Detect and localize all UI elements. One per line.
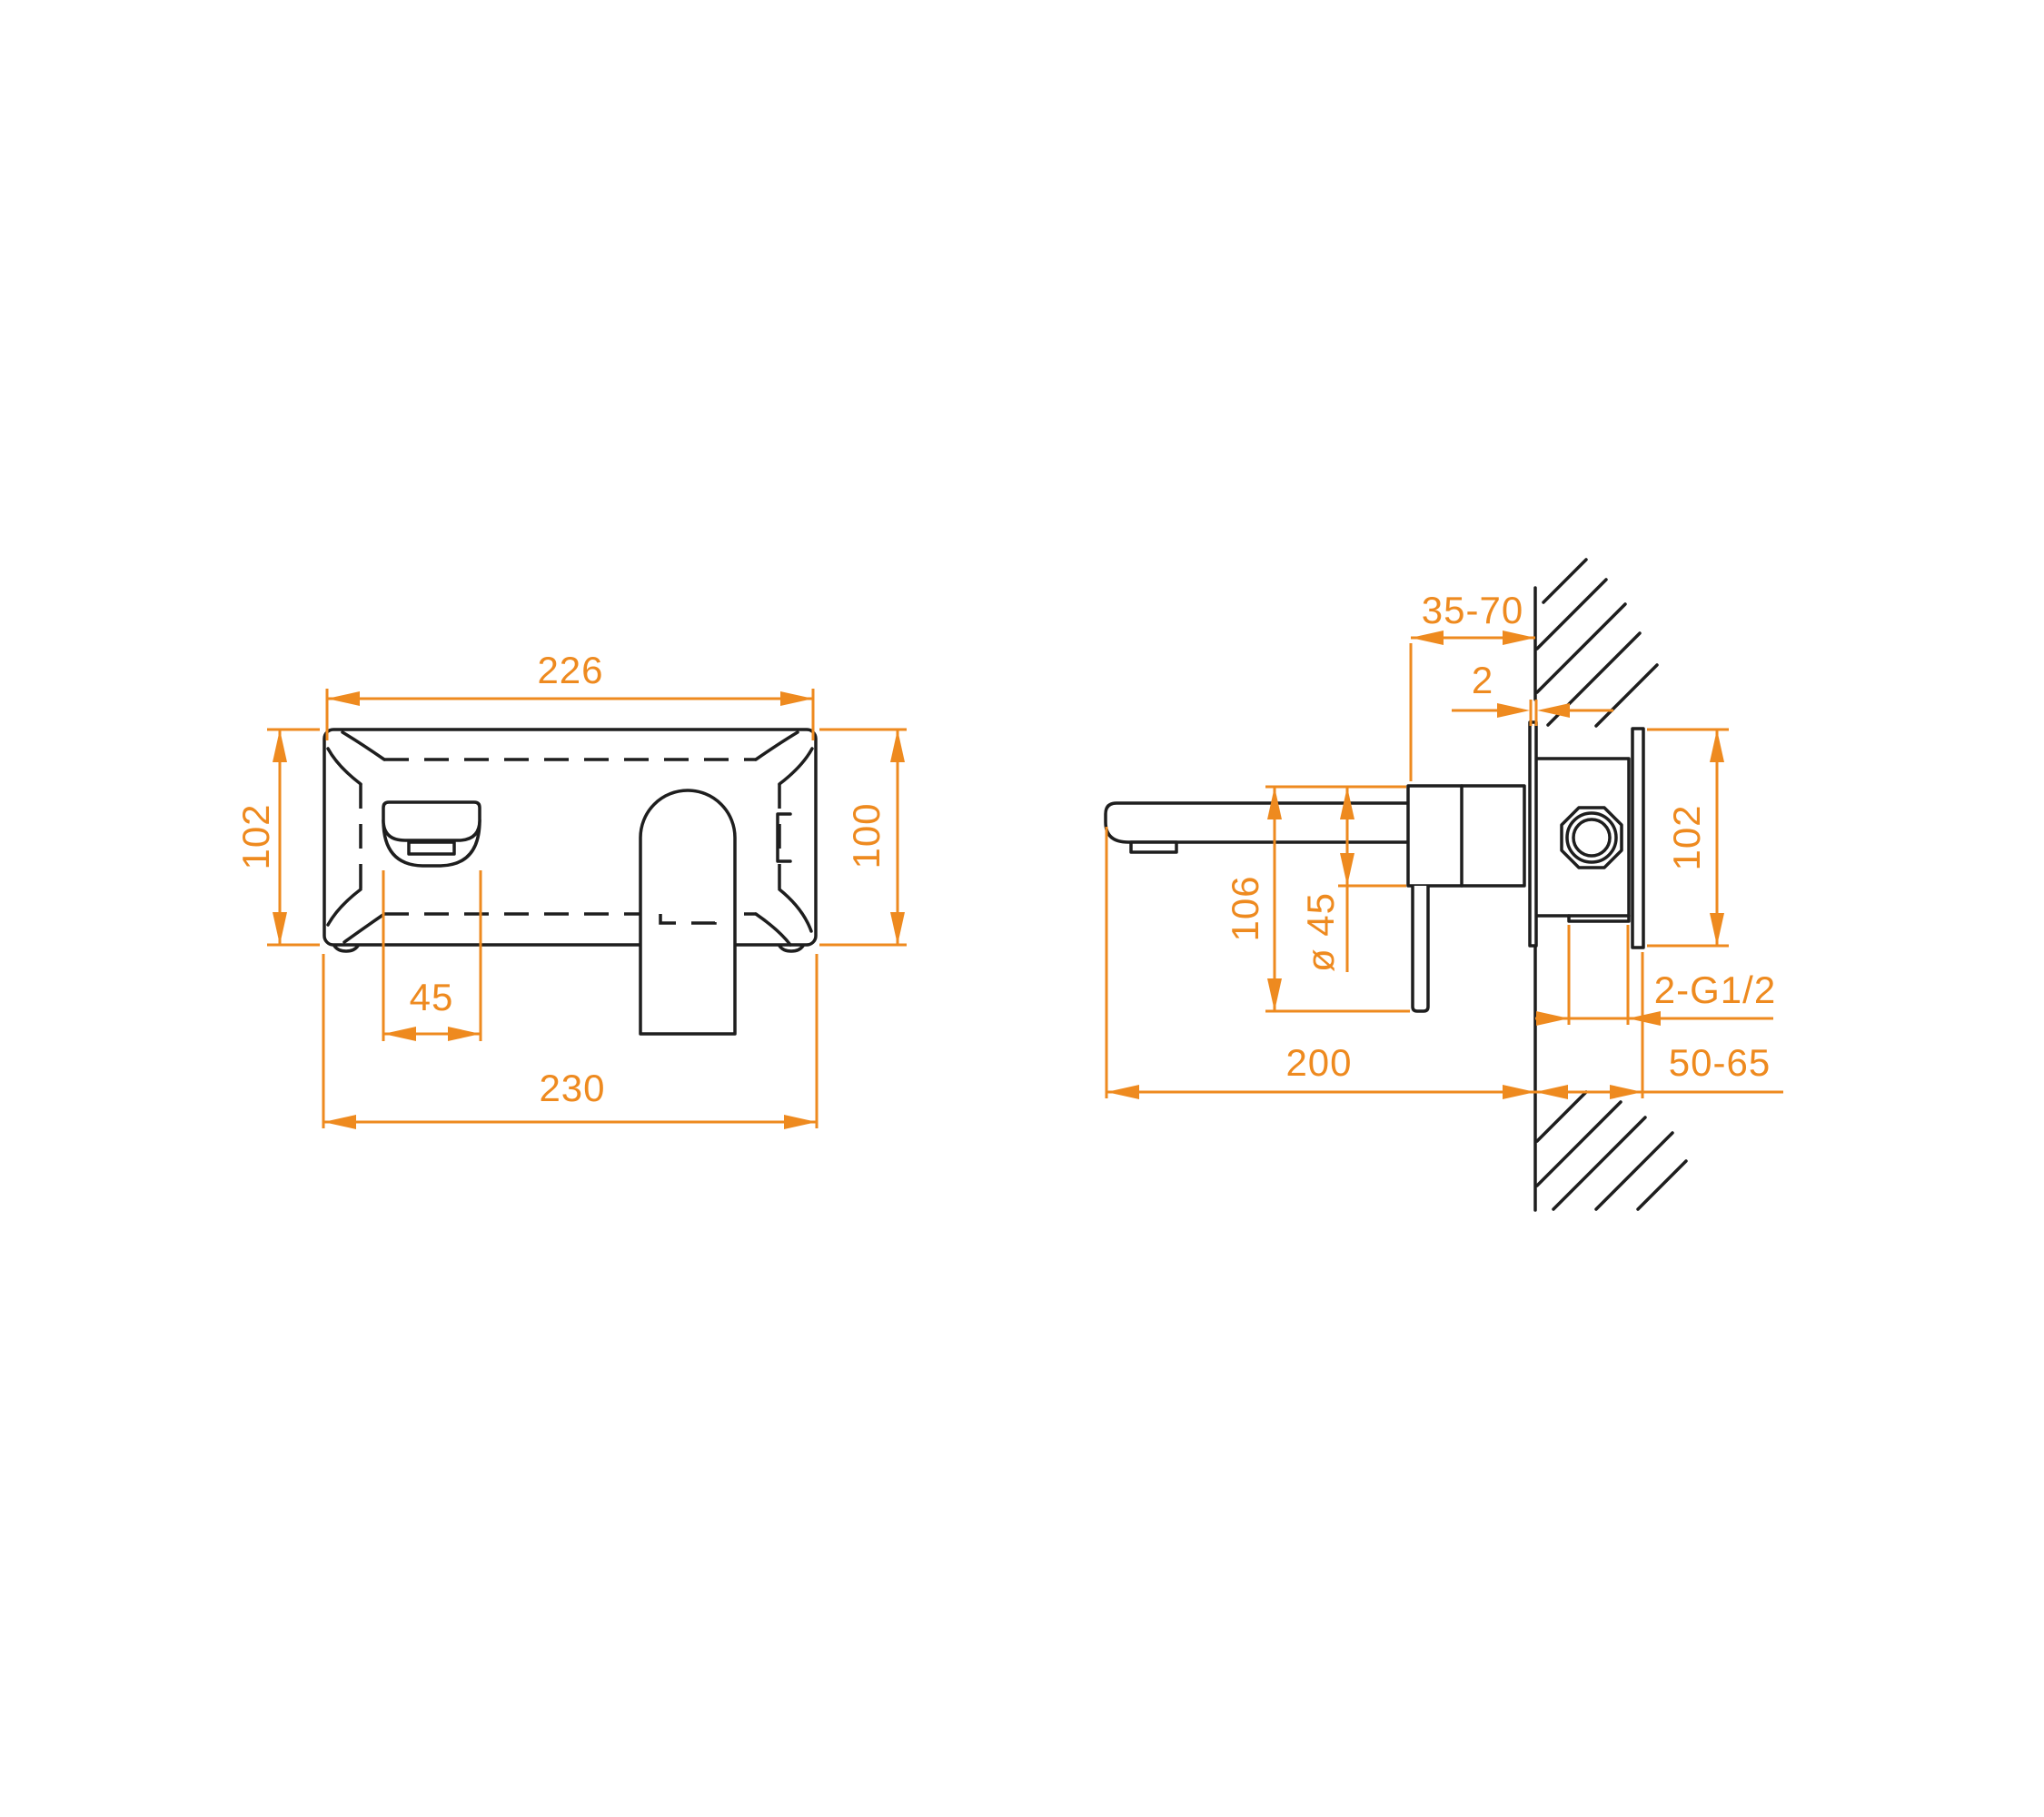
wall-hatch-bottom bbox=[1537, 1092, 1686, 1209]
dim-label-2-g12: 2-G1/2 bbox=[1654, 968, 1776, 1011]
dim-body-diameter: ø 45 bbox=[1299, 787, 1406, 972]
dim-thread-callout: 2-G1/2 bbox=[1535, 925, 1776, 1026]
wall-hatch-top bbox=[1537, 560, 1657, 726]
technical-drawing: 226 102 100 45 230 bbox=[0, 0, 2044, 1817]
dim-label-35-70: 35-70 bbox=[1422, 589, 1523, 631]
aerator bbox=[1131, 842, 1176, 852]
dim-label-226: 226 bbox=[537, 649, 603, 691]
dim-label-230: 230 bbox=[539, 1067, 605, 1109]
trim-plate-edge bbox=[1530, 722, 1536, 946]
spout-front bbox=[640, 790, 735, 1034]
backplate-side bbox=[1632, 729, 1643, 948]
mixer-body-side bbox=[1408, 786, 1524, 886]
dim-label-106: 106 bbox=[1224, 875, 1266, 941]
plate-foot-right bbox=[779, 946, 803, 951]
plate-foot-left bbox=[334, 946, 358, 951]
dim-plate-thickness: 2 bbox=[1452, 659, 1613, 726]
dim-label-100: 100 bbox=[845, 802, 888, 869]
dim-label-50-65: 50-65 bbox=[1669, 1041, 1771, 1084]
dim-width-bottom: 230 bbox=[323, 954, 817, 1129]
page: { "drawing": { "type": "technical-instal… bbox=[0, 0, 2044, 1817]
dim-backplate-height: 102 bbox=[1647, 730, 1729, 946]
handle-inset bbox=[409, 842, 454, 854]
front-view: 226 102 100 45 230 bbox=[234, 649, 907, 1129]
dim-label-dia-45: ø 45 bbox=[1299, 892, 1342, 972]
side-view: 35-70 2 102 106 ø 45 bbox=[1106, 560, 1783, 1210]
dim-label-102-right: 102 bbox=[1665, 804, 1708, 870]
dim-label-45: 45 bbox=[410, 976, 454, 1018]
dim-height-left: 102 bbox=[234, 730, 320, 945]
dim-label-2: 2 bbox=[1472, 659, 1493, 701]
dim-label-200: 200 bbox=[1285, 1041, 1352, 1084]
spout-side bbox=[1106, 803, 1417, 842]
dim-width-top: 226 bbox=[327, 649, 813, 740]
dim-label-102-left: 102 bbox=[234, 803, 277, 869]
dim-height-right: 100 bbox=[819, 730, 907, 945]
g-half-connection bbox=[1562, 808, 1622, 868]
handle-lever-side bbox=[1413, 886, 1428, 1011]
